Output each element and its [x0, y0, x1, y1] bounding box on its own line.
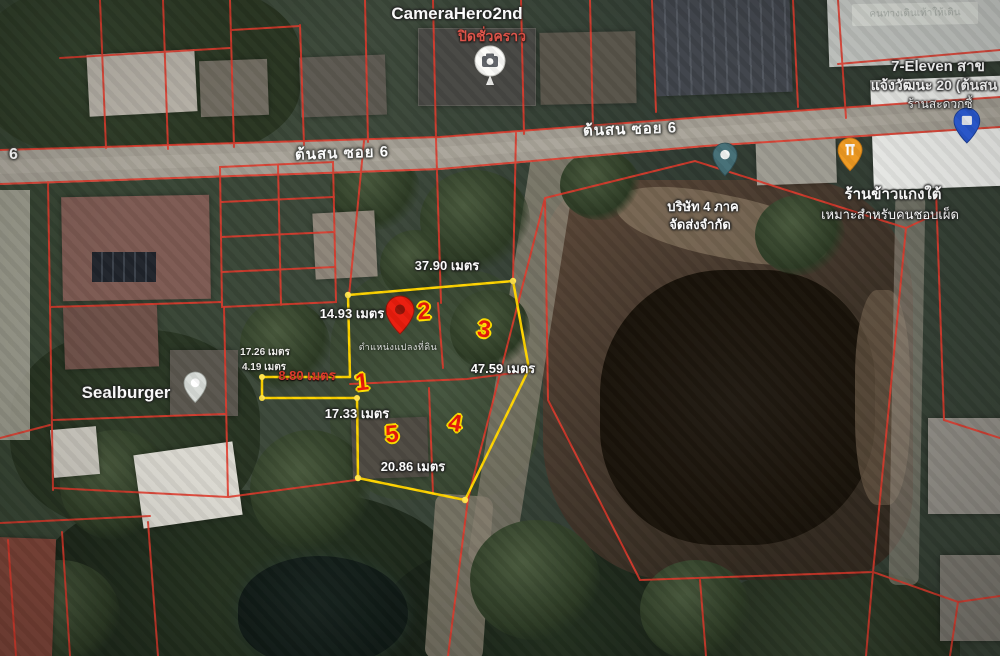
- measurement-bottom: 20.86 เมตร: [381, 456, 446, 477]
- solar-panels: [92, 252, 156, 282]
- building-right-lower: [928, 418, 1000, 514]
- building-top-center-right: [539, 31, 636, 105]
- tree: [560, 150, 640, 220]
- building-mauve-lower: [63, 304, 159, 369]
- cleared-land-dark: [600, 270, 875, 545]
- poi-seven-eleven-line3: ร้านสะดวกซื้: [907, 95, 972, 114]
- poi-burger-shop[interactable]: Sealburger: [82, 383, 171, 403]
- measurement-top: 37.90 เมตร: [415, 255, 480, 276]
- poi-restaurant-line2: เหมาะสำหรับคนชอบเผ็ด: [821, 204, 959, 225]
- poi-company-line2: จัดส่งจำกัด: [669, 214, 731, 235]
- poi-seven-eleven-line2: แจ้งวัฒนะ 20 (ต้นสน: [871, 75, 997, 97]
- building-paneled-roof: [653, 0, 792, 96]
- warehouse-white: [133, 441, 242, 528]
- building-top-center-left: [299, 55, 387, 118]
- sign-banner: คนทางเดินเท้าให้เดิน: [852, 2, 978, 26]
- road-number-left: 6: [9, 146, 19, 164]
- road-label-left: ต้นสน ซอย 6: [295, 139, 390, 166]
- poi-restaurant-line1[interactable]: ร้านข้าวแกงใต้: [845, 182, 942, 206]
- shed-white-small: [50, 426, 100, 478]
- path-right-edge: [889, 195, 926, 585]
- building-dark-topleft: [199, 59, 269, 117]
- measurement-upper-left: 14.93 เมตร: [320, 303, 385, 324]
- building-red-roof-bottom-left: [0, 537, 56, 656]
- building-bottom-right: [940, 555, 1000, 641]
- measurement-middle: 17.33 เมตร: [325, 403, 390, 424]
- measurement-left-small-1: 17.26 เมตร: [240, 345, 290, 360]
- building-above-plot: [312, 210, 377, 279]
- poi-camera-shop-name[interactable]: CameraHero2nd: [391, 4, 522, 24]
- tree: [470, 520, 600, 640]
- measurement-corridor: 8.80 เมตร: [278, 365, 335, 386]
- building-near-sealburger: [170, 350, 238, 416]
- plot-note: ตำแหน่งแปลงที่ดิน: [359, 340, 438, 354]
- building-gray-topleft: [86, 49, 197, 117]
- parcel-number-2: 2: [416, 300, 431, 325]
- satellite-map[interactable]: CameraHero2nd ปิดชั่วคราว คนทางเดินเท้าใ…: [0, 0, 1000, 656]
- tree: [640, 560, 750, 656]
- parcel-number-1: 1: [354, 370, 370, 395]
- driveway-left-edge: [0, 190, 30, 440]
- road-label-right: ต้นสน ซอย 6: [583, 115, 678, 142]
- restaurant-pin: [838, 138, 862, 171]
- measurement-right: 47.59 เมตร: [471, 358, 536, 379]
- building-mauve-roof-house: [61, 195, 211, 302]
- poi-camera-shop-status: ปิดชั่วคราว: [458, 26, 526, 48]
- sign-banner-text: คนทางเดินเท้าให้เดิน: [869, 7, 960, 20]
- building-right-mid: [755, 125, 837, 186]
- parcel-number-5: 5: [384, 422, 399, 447]
- company-pin: [713, 143, 737, 176]
